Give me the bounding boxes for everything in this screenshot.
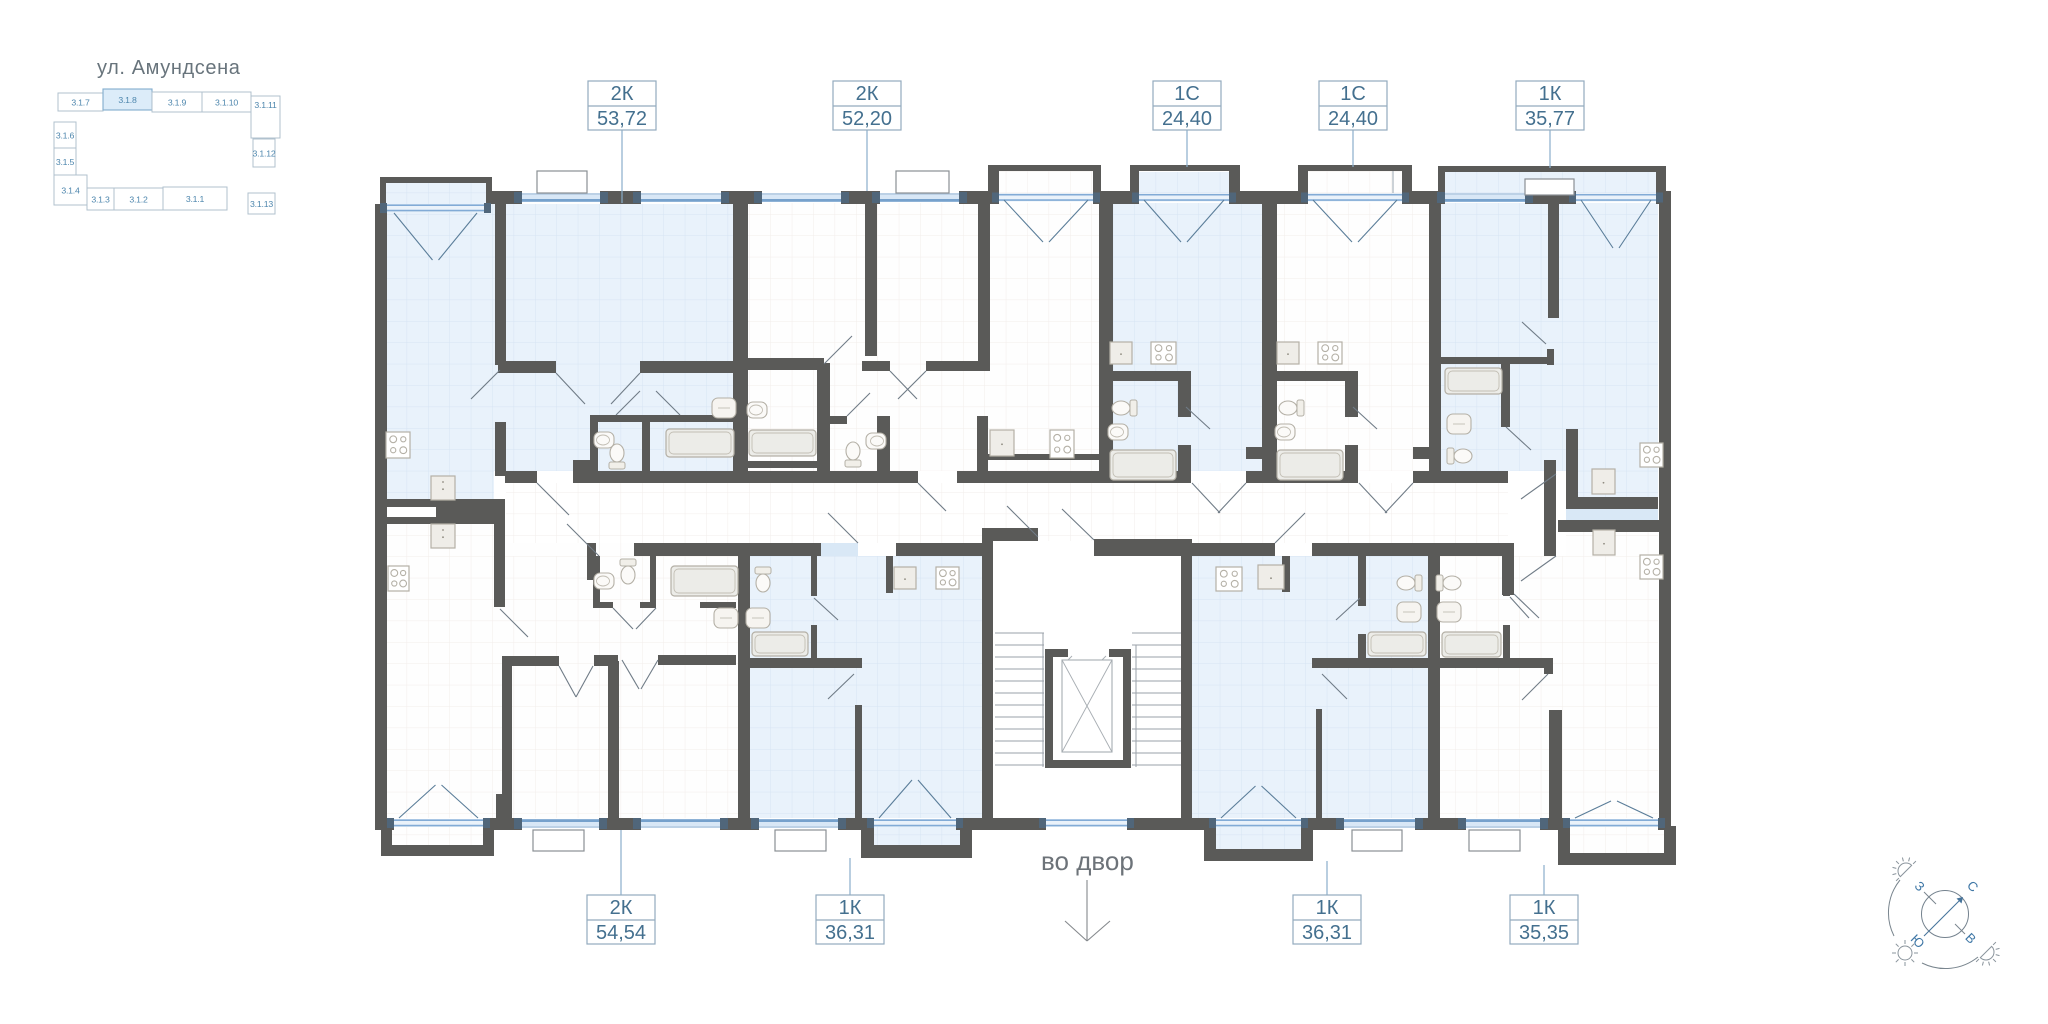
svg-text:3.1.3: 3.1.3	[91, 195, 110, 205]
svg-text:1К: 1К	[839, 897, 862, 919]
svg-text:35,77: 35,77	[1525, 108, 1575, 130]
svg-text:3.1.1: 3.1.1	[186, 194, 205, 204]
svg-text:1К: 1К	[1316, 897, 1339, 919]
svg-text:1К: 1К	[1539, 83, 1562, 105]
svg-text:35,35: 35,35	[1519, 922, 1569, 944]
svg-text:3.1.7: 3.1.7	[71, 98, 90, 108]
svg-text:24,40: 24,40	[1162, 108, 1212, 130]
svg-text:1К: 1К	[1533, 897, 1556, 919]
svg-text:2К: 2К	[611, 83, 634, 105]
svg-text:24,40: 24,40	[1328, 108, 1378, 130]
svg-text:3.1.10: 3.1.10	[215, 98, 238, 108]
svg-text:3.1.2: 3.1.2	[129, 195, 148, 205]
svg-text:1С: 1С	[1174, 83, 1200, 105]
svg-text:3.1.4: 3.1.4	[61, 186, 80, 196]
svg-text:3.1.13: 3.1.13	[250, 199, 273, 209]
svg-text:36,31: 36,31	[825, 922, 875, 944]
svg-text:3.1.6: 3.1.6	[56, 131, 75, 141]
svg-text:3.1.12: 3.1.12	[253, 149, 276, 159]
svg-text:2К: 2К	[856, 83, 879, 105]
svg-text:54,54: 54,54	[596, 922, 646, 944]
svg-text:3.1.9: 3.1.9	[168, 98, 187, 108]
svg-text:3.1.5: 3.1.5	[56, 157, 75, 167]
svg-text:ул. Амундсена: ул. Амундсена	[97, 57, 241, 79]
svg-text:53,72: 53,72	[597, 108, 647, 130]
svg-text:3.1.8: 3.1.8	[118, 95, 137, 105]
svg-text:1С: 1С	[1340, 83, 1366, 105]
svg-text:во двор: во двор	[1041, 846, 1134, 876]
svg-text:52,20: 52,20	[842, 108, 892, 130]
svg-text:2К: 2К	[610, 897, 633, 919]
svg-text:3.1.11: 3.1.11	[254, 100, 277, 110]
svg-text:36,31: 36,31	[1302, 922, 1352, 944]
